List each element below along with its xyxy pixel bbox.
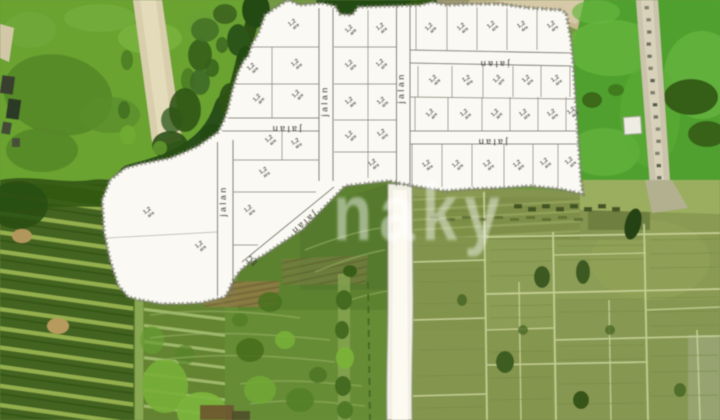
- svg-text:naky: naky: [333, 168, 507, 257]
- svg-text:jalan: jalan: [218, 185, 228, 218]
- svg-text:jalan: jalan: [478, 59, 511, 69]
- svg-text:jalan: jalan: [476, 137, 509, 147]
- svg-text:jalan: jalan: [396, 72, 406, 105]
- svg-text:jalan: jalan: [270, 124, 303, 134]
- svg-text:jalan: jalan: [320, 85, 330, 118]
